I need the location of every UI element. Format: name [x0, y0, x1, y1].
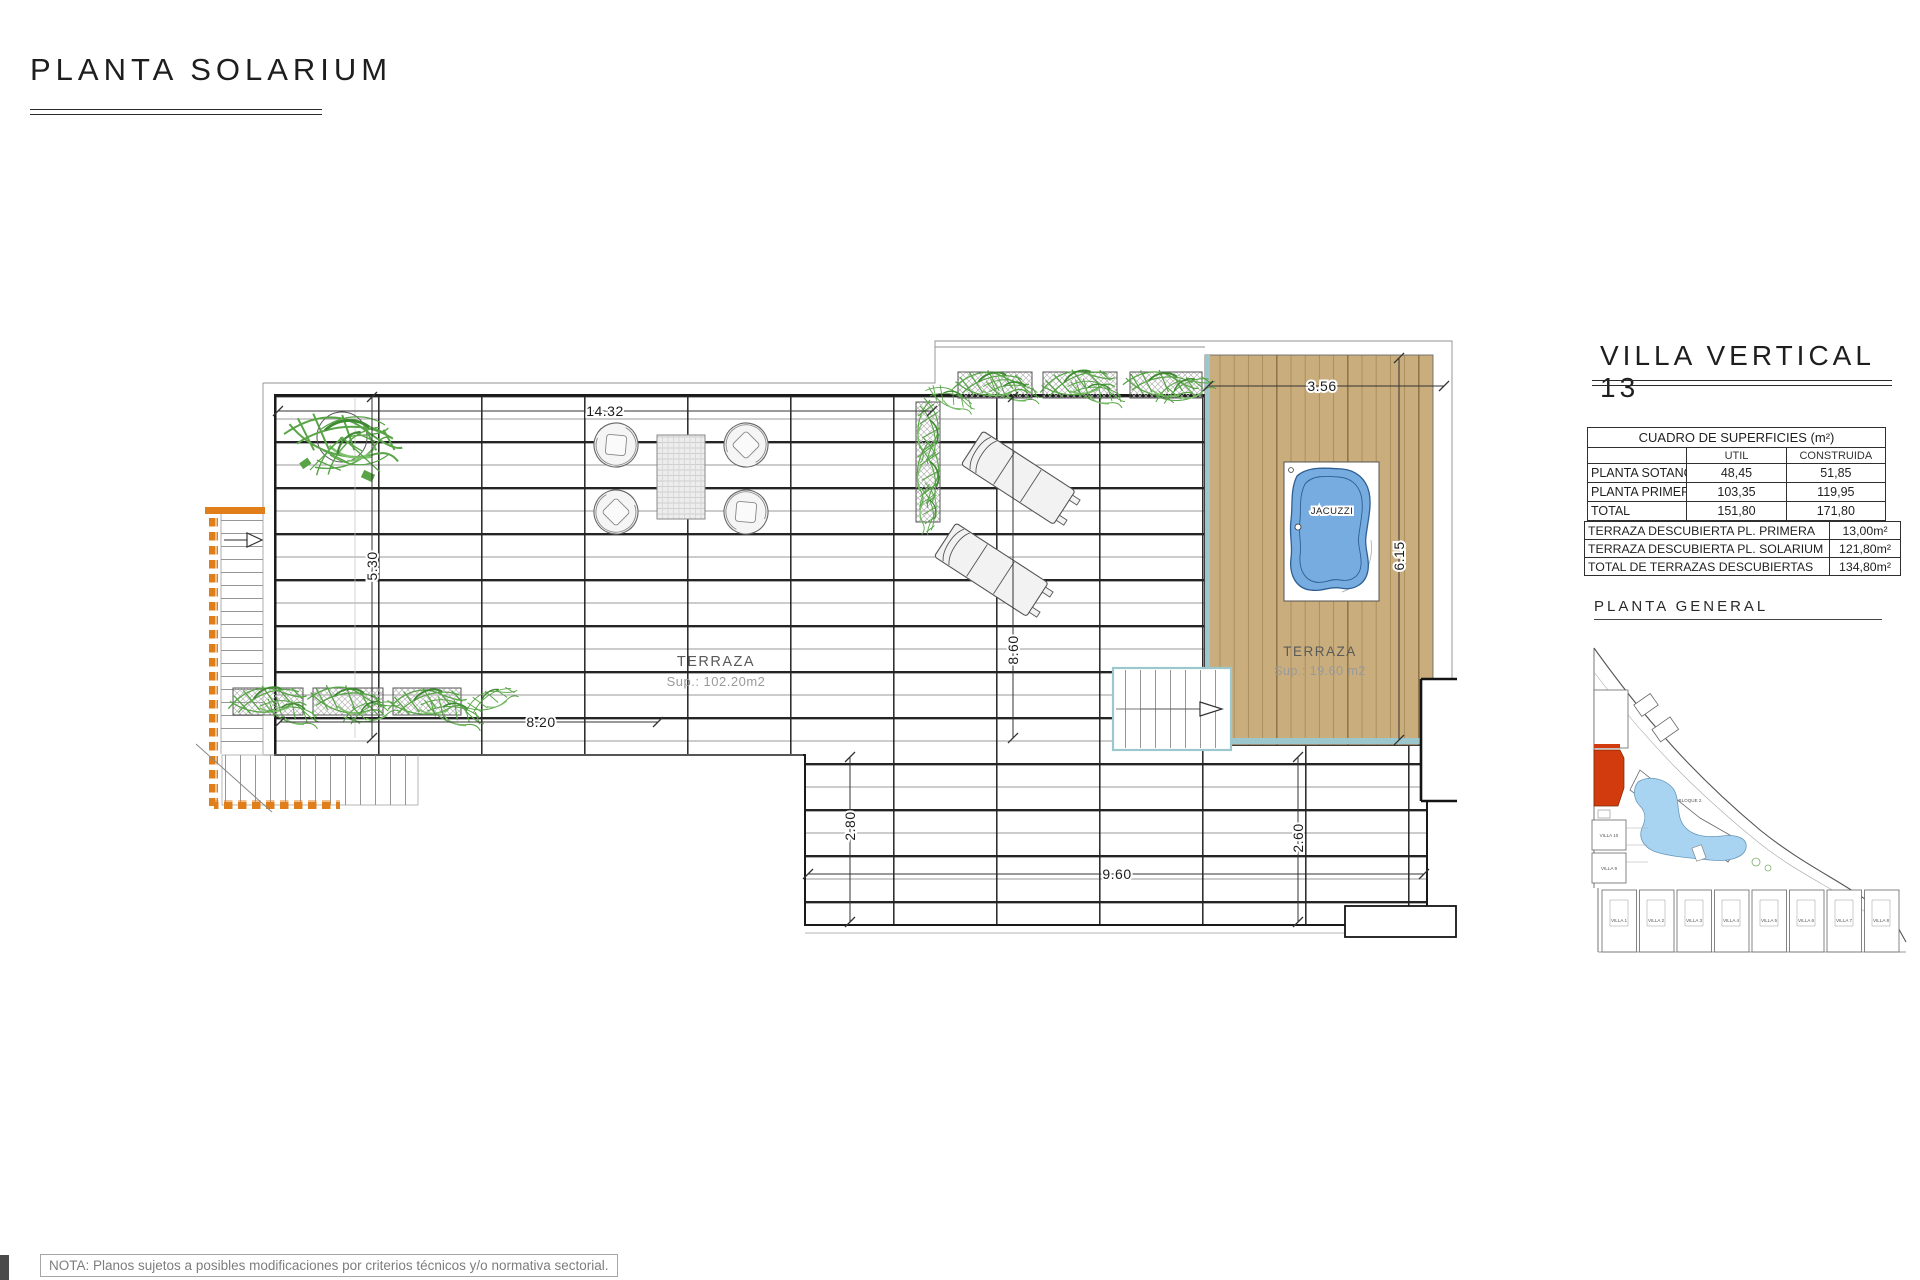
- dim-deck-top: 3.56: [1307, 378, 1336, 394]
- deck-sup-label: Sup.: 19.60 m2: [1274, 664, 1366, 678]
- deck-terrace-label: TERRAZA: [1283, 644, 1357, 659]
- right-step-notch: [1421, 679, 1457, 801]
- site-villa10-label: VILLA 10: [1600, 833, 1619, 838]
- site-bloque-label: BLOQUE 2: [1679, 798, 1702, 803]
- table: [657, 435, 705, 519]
- site-plan-underline: [1594, 619, 1882, 620]
- terrace-label: TERRAZA: [677, 654, 755, 670]
- surfaces-table-title: CUADRO DE SUPERFICIES (m²): [1588, 428, 1886, 448]
- surfaces-table: CUADRO DE SUPERFICIES (m²) UTIL CONSTRUI…: [1587, 427, 1886, 521]
- dim-lower-right: 2.60: [1290, 823, 1306, 852]
- dim-lower-left: 2.80: [842, 811, 858, 840]
- svg-text:VILLA 4: VILLA 4: [1723, 918, 1740, 923]
- table-row: TOTAL 151,80 171,80: [1588, 502, 1886, 521]
- floor-plan-canvas: JACUZZI 14.32 3.56 5.30 8.60 6.15 8.20 2…: [0, 0, 1920, 1280]
- site-bottom-villas: [1598, 890, 1906, 952]
- dim-width-top: 14.32: [586, 403, 624, 419]
- stair-orange-bar: [205, 507, 265, 514]
- svg-text:VILLA 7: VILLA 7: [1836, 918, 1853, 923]
- svg-text:VILLA 1: VILLA 1: [1611, 918, 1628, 923]
- table-row: PLANTA SOTANO 48,45 51,85: [1588, 464, 1886, 483]
- dim-deck-height: 6.15: [1391, 541, 1407, 570]
- svg-text:VILLA 8: VILLA 8: [1873, 918, 1890, 923]
- svg-text:VILLA 6: VILLA 6: [1798, 918, 1815, 923]
- svg-text:VILLA 2: VILLA 2: [1648, 918, 1665, 923]
- jacuzzi-label: JACUZZI: [1311, 506, 1354, 517]
- table-row: TOTAL DE TERRAZAS DESCUBIERTAS 134,80m²: [1585, 558, 1901, 576]
- dim-height-mid: 8.60: [1005, 635, 1021, 664]
- sheet-edge-mark: [0, 1255, 9, 1280]
- drawing-sheet: JACUZZI 14.32 3.56 5.30 8.60 6.15 8.20 2…: [0, 0, 1920, 1280]
- site-highlighted-villa: [1594, 750, 1624, 806]
- site-villa9-label: VILLA 9: [1601, 866, 1618, 871]
- table-row: TERRAZA DESCUBIERTA PL. PRIMERA 13,00m²: [1585, 522, 1901, 540]
- col-header-util: UTIL: [1687, 448, 1786, 464]
- site-plan-map: BLOQUE 2 VILLA 10 VILLA 9 VILLA 1 VILLA …: [1592, 648, 1906, 952]
- center-staircase: [1113, 668, 1231, 750]
- site-plan-title: PLANTA GENERAL: [1594, 598, 1768, 615]
- svg-text:VILLA 3: VILLA 3: [1686, 918, 1703, 923]
- dim-left: 5.30: [364, 551, 380, 580]
- dim-lower-width: 9.60: [1102, 866, 1131, 882]
- villa-title-underline: [1592, 380, 1892, 386]
- terraces-table: TERRAZA DESCUBIERTA PL. PRIMERA 13,00m² …: [1584, 521, 1901, 576]
- table-row: TERRAZA DESCUBIERTA PL. SOLARIUM 121,80m…: [1585, 540, 1901, 558]
- villa-title: VILLA VERTICAL 13: [1600, 340, 1920, 404]
- note-box: NOTA: Planos sujetos a posibles modifica…: [40, 1254, 618, 1277]
- terrace-sup-label: Sup.: 102.20m2: [667, 674, 766, 689]
- vertical-planter: [916, 398, 941, 535]
- bottom-right-step: [1345, 906, 1456, 937]
- page-title: PLANTA SOLARIUM: [30, 52, 392, 88]
- col-header-construida: CONSTRUIDA: [1786, 448, 1885, 464]
- dim-bottom-upper: 8.20: [526, 714, 555, 730]
- svg-text:VILLA 5: VILLA 5: [1761, 918, 1778, 923]
- title-underline: [30, 109, 322, 115]
- table-row: PLANTA PRIMERA 103,35 119,95: [1588, 483, 1886, 502]
- jacuzzi: JACUZZI: [1284, 462, 1379, 601]
